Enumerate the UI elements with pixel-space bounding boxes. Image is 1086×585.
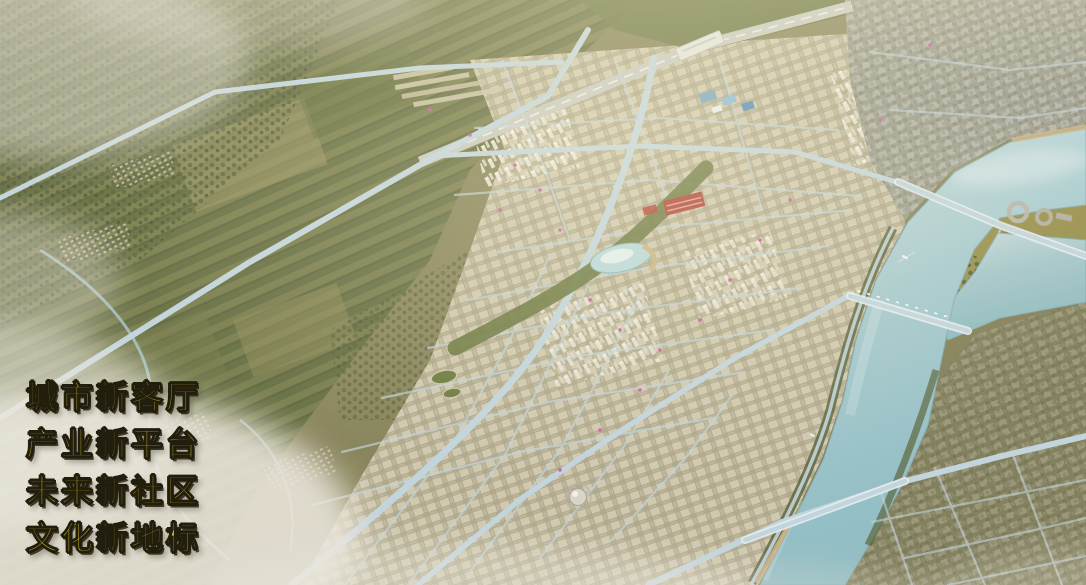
city-masterplan-rendering (0, 0, 1086, 585)
masterplan-poster: 城市新客厅 产业新平台 未来新社区 文化新地标 (0, 0, 1086, 585)
